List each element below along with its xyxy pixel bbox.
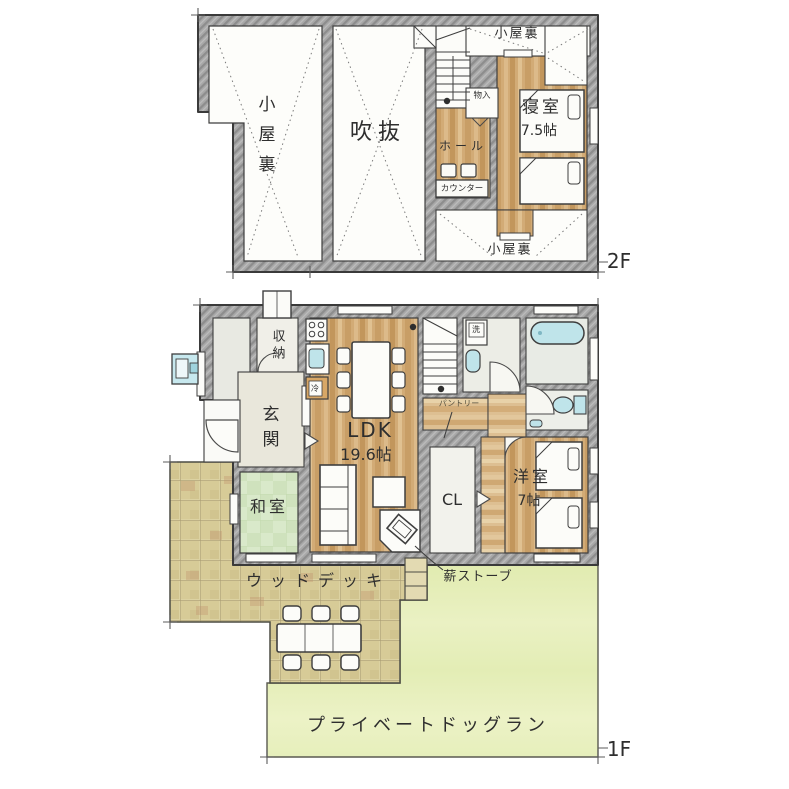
label-cl: CL bbox=[442, 492, 462, 508]
deck-table bbox=[277, 624, 361, 652]
stair-start-dot bbox=[438, 386, 444, 392]
label-pantry: パントリー bbox=[439, 400, 479, 408]
room-attic-top-right bbox=[545, 26, 587, 85]
dining-chair bbox=[392, 372, 405, 388]
bedroom-floor-stub bbox=[497, 210, 533, 236]
deck-chair bbox=[283, 606, 301, 621]
stove-cooktop bbox=[306, 319, 327, 341]
label-ldk-size: 19.6帖 bbox=[340, 447, 392, 463]
deck-chair bbox=[283, 655, 301, 670]
label-western-room-size: 7帖 bbox=[518, 494, 541, 508]
dining-chair bbox=[337, 396, 350, 412]
label-laundry: 洗 bbox=[472, 326, 480, 334]
post-dot bbox=[410, 324, 416, 330]
kitchen-sink bbox=[309, 349, 324, 368]
label-western-room: 洋室 bbox=[513, 469, 551, 485]
label-japanese-room: 和室 bbox=[250, 499, 288, 515]
deck-chair bbox=[312, 655, 330, 670]
label-floor2-tag: 2F bbox=[607, 251, 631, 271]
deck-chair bbox=[312, 606, 330, 621]
hallway-lower bbox=[481, 437, 505, 553]
pillow bbox=[568, 506, 579, 528]
coffee-table bbox=[373, 477, 405, 507]
pillow bbox=[568, 95, 580, 119]
label-wood-deck: ウッドデッキ bbox=[246, 573, 390, 589]
label-attic-bottom: 小屋裏 bbox=[487, 244, 532, 257]
floor-plan-drawing bbox=[0, 0, 789, 789]
label-floor1-tag: 1F bbox=[607, 739, 631, 759]
counter-stool bbox=[441, 164, 456, 177]
floor-plan: 小屋裏 吹抜 小屋裏 物入 ホール カウンター 寝室 7.5帖 小屋裏 2F 収… bbox=[0, 0, 789, 789]
label-fridge: 冷 bbox=[311, 385, 319, 393]
dining-chair bbox=[392, 348, 405, 364]
pillow bbox=[568, 162, 580, 184]
dining-table bbox=[352, 342, 390, 418]
deck-steps bbox=[405, 558, 427, 600]
dining-set bbox=[337, 342, 405, 418]
label-wood-stove: 薪ストーブ bbox=[443, 571, 512, 584]
deck-chair bbox=[341, 655, 359, 670]
label-storage-1f: 収納 bbox=[271, 329, 284, 363]
label-ldk: LDK bbox=[347, 420, 393, 440]
hallway-upper bbox=[488, 394, 526, 437]
label-entrance: 玄関 bbox=[260, 405, 277, 455]
stair-start-dot bbox=[444, 98, 450, 104]
dining-chair bbox=[337, 348, 350, 364]
label-attic-left: 小屋裏 bbox=[256, 95, 273, 185]
counter-stool bbox=[461, 164, 476, 177]
sofa bbox=[320, 465, 356, 545]
label-void: 吹抜 bbox=[350, 122, 406, 144]
dining-chair bbox=[337, 372, 350, 388]
label-bedroom-2f-size: 7.5帖 bbox=[521, 124, 557, 138]
deck-chair bbox=[341, 606, 359, 621]
toilet-hand-basin bbox=[530, 420, 542, 427]
toilet-tank bbox=[574, 396, 586, 414]
outdoor-faucet bbox=[172, 354, 198, 384]
label-monoire: 物入 bbox=[473, 92, 490, 101]
wash-basin bbox=[466, 350, 480, 372]
stairs-1f bbox=[423, 318, 457, 394]
toilet-bowl bbox=[553, 397, 573, 413]
label-dog-run: プライベートドッグラン bbox=[307, 717, 549, 735]
label-hall-2f: ホール bbox=[439, 140, 487, 152]
floor1-house bbox=[197, 305, 598, 570]
pillow bbox=[568, 448, 579, 470]
label-attic-top: 小屋裏 bbox=[494, 28, 539, 41]
dining-chair bbox=[392, 396, 405, 412]
label-counter: カウンター bbox=[441, 185, 484, 194]
label-bedroom-2f: 寝室 bbox=[522, 100, 562, 117]
deck-dining-set bbox=[277, 606, 361, 670]
